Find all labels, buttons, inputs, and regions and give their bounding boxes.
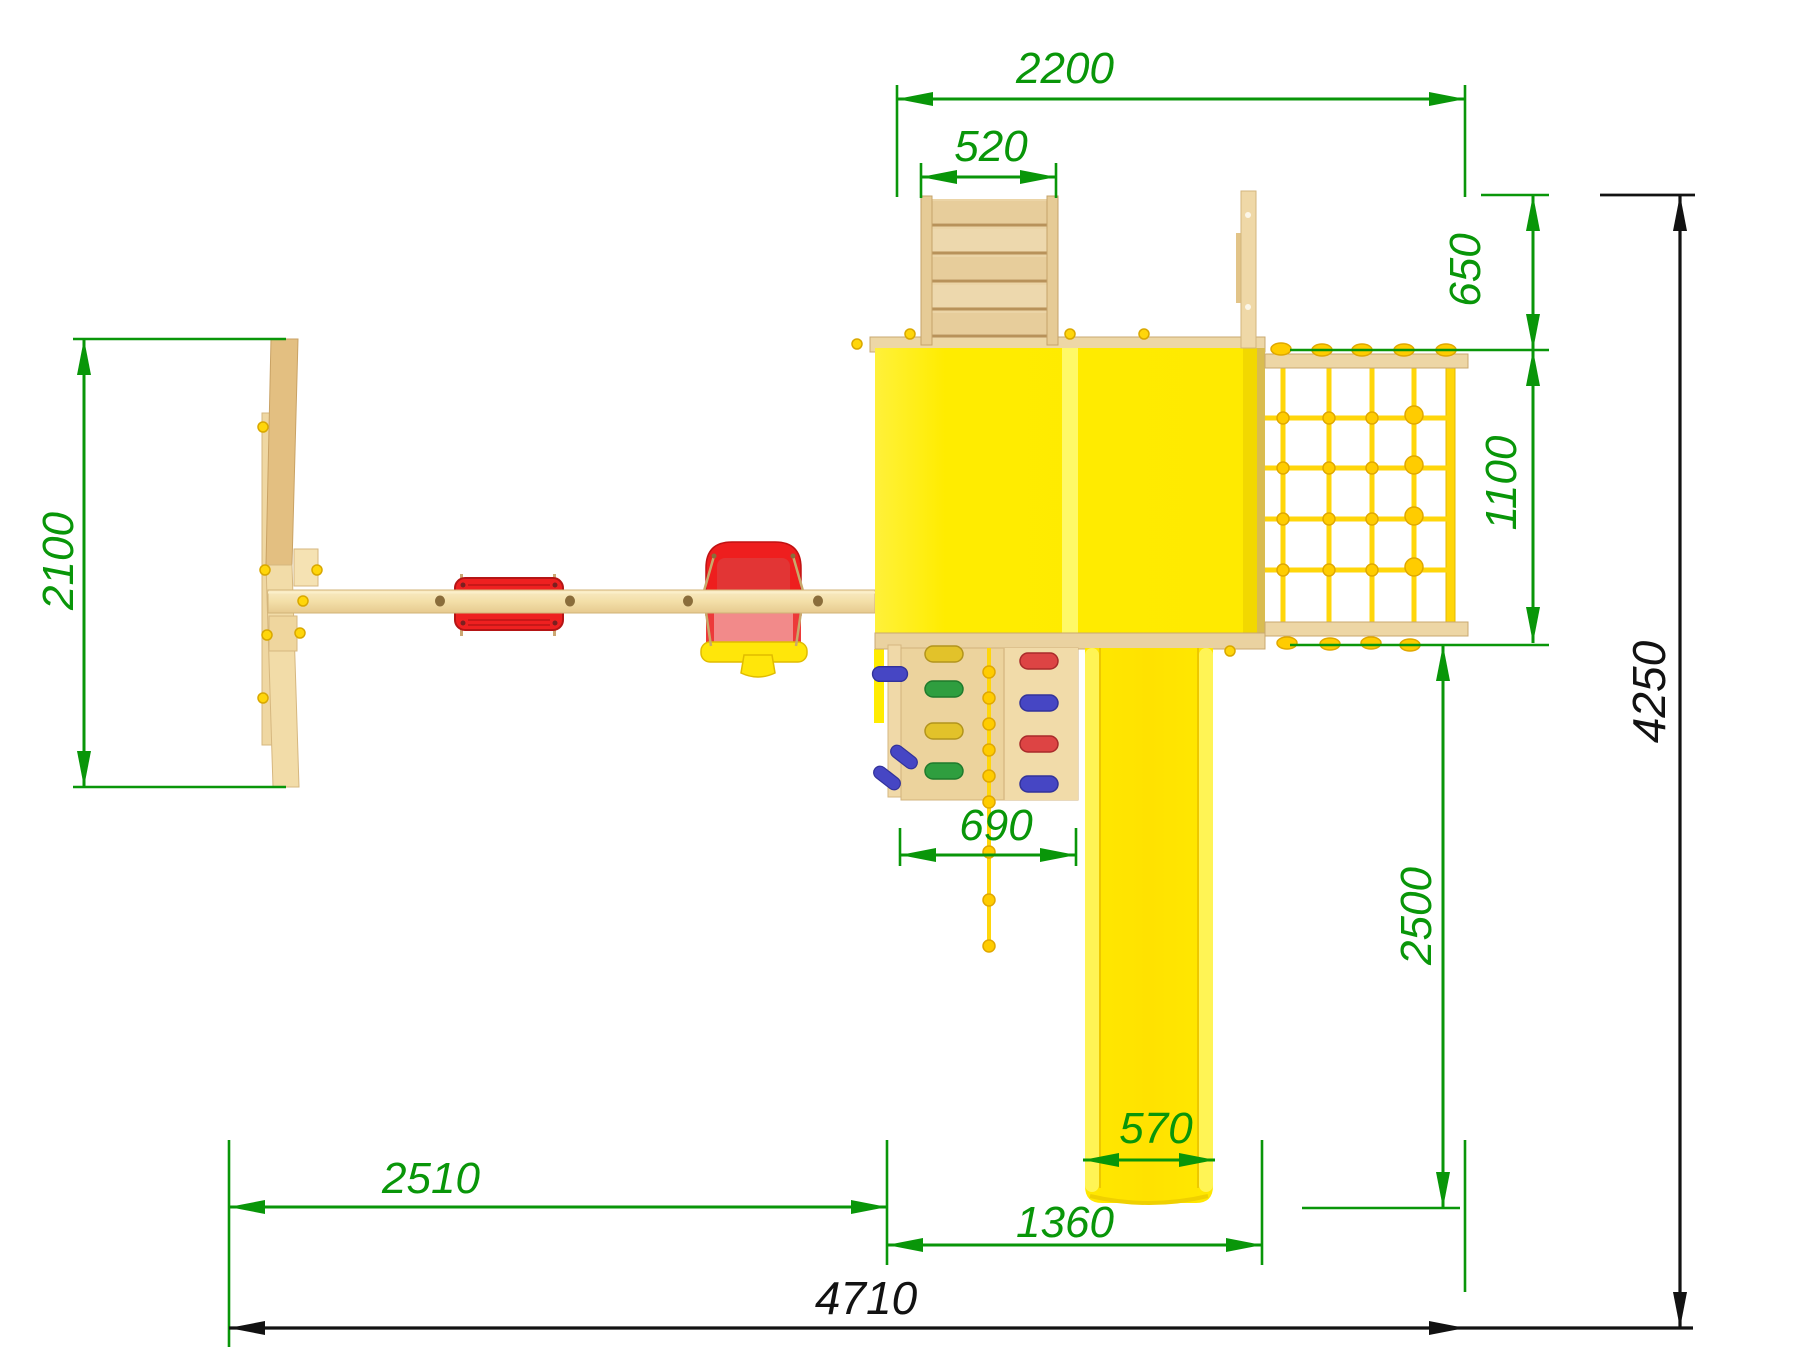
board-hole [1245, 304, 1251, 310]
beam-hole [813, 596, 823, 607]
bolt [295, 628, 305, 638]
arrowhead [921, 170, 957, 184]
arrowhead [1673, 1292, 1687, 1328]
beam-hole [683, 596, 693, 607]
arrowhead [1436, 1172, 1450, 1208]
arrowhead [77, 339, 91, 375]
arrowhead [851, 1200, 887, 1214]
net-knots [1277, 406, 1423, 576]
bolt [1065, 329, 1075, 339]
roof-ridge [1062, 348, 1078, 638]
seat-screw [553, 583, 558, 588]
bolt [260, 565, 270, 575]
rope-hook [791, 554, 796, 559]
drawing-canvas: 2200 520 2100 650 1100 4250 690 2500 570… [0, 0, 1800, 1353]
hold-blue [1020, 695, 1058, 711]
baby-seat-cushion [714, 613, 793, 644]
a-frame-lower-block [269, 616, 297, 651]
dim-label-2100: 2100 [34, 512, 83, 611]
ladder-rungs [932, 201, 1047, 336]
entry-ladder [921, 196, 1058, 345]
bolt [852, 339, 862, 349]
arrowhead [1020, 170, 1056, 184]
slide-right-rail [1199, 648, 1213, 1192]
bolt [312, 565, 322, 575]
bolt [905, 329, 915, 339]
dim-label-1360: 1360 [1016, 1198, 1114, 1247]
hold-red [1020, 653, 1058, 669]
hold-green [925, 681, 963, 697]
hold-green [925, 763, 963, 779]
arrowhead [887, 1238, 923, 1252]
beam-hole [565, 596, 575, 607]
hold-yellow [925, 646, 963, 662]
dim-label-4710: 4710 [815, 1272, 918, 1324]
bolt [298, 596, 308, 606]
hold-red [1020, 736, 1058, 752]
roof-right-edge [1257, 348, 1265, 638]
tower-left-wall [874, 649, 884, 723]
playground-top-view-drawing: 2200 520 2100 650 1100 4250 690 2500 570… [0, 0, 1800, 1353]
arrowhead [1526, 350, 1540, 386]
arrowhead [1673, 195, 1687, 231]
arrowhead [1526, 607, 1540, 643]
seat-screw [553, 621, 558, 626]
a-frame-upper-leg [266, 339, 298, 565]
dim-label-520: 520 [954, 122, 1028, 171]
climbing-rope [983, 648, 995, 952]
swing-a-frame [258, 339, 322, 787]
beam-hole [435, 596, 445, 607]
climbing-wall [871, 645, 1078, 952]
dim-label-570: 570 [1119, 1104, 1193, 1153]
board-hole [1245, 212, 1251, 218]
bolt [258, 422, 268, 432]
arrowhead [1226, 1238, 1262, 1252]
balcony-board [1236, 191, 1256, 348]
bolt [1139, 329, 1149, 339]
ladder-right-rail [1047, 196, 1058, 345]
seat-screw [461, 583, 466, 588]
dim-label-1100: 1100 [1477, 435, 1526, 530]
rope-hook [712, 554, 717, 559]
hold-yellow [925, 723, 963, 739]
arrowhead [1526, 195, 1540, 231]
seat-screw [461, 621, 466, 626]
dim-label-690: 690 [959, 801, 1033, 850]
arrowhead [77, 751, 91, 787]
dim-label-4250: 4250 [1623, 640, 1675, 743]
net-bottom-bar [1265, 622, 1468, 636]
net-rope-curls [1271, 343, 1456, 651]
climbing-net [1265, 343, 1468, 651]
arrowhead [900, 848, 936, 862]
arrowhead [897, 92, 933, 106]
dim-label-2510: 2510 [381, 1154, 480, 1203]
swing-beam [268, 590, 875, 613]
arrowhead [229, 1200, 265, 1214]
ladder-left-rail [921, 196, 932, 345]
bolt [262, 630, 272, 640]
slide-left-rail [1085, 648, 1099, 1192]
hold-blue [1020, 776, 1058, 792]
arrowhead [1429, 1321, 1465, 1335]
dim-label-2200: 2200 [1015, 44, 1114, 93]
bolt [258, 693, 268, 703]
bolt [1225, 646, 1235, 656]
baby-seat-tongue [741, 655, 775, 677]
arrowhead [1040, 848, 1076, 862]
net-ropes [1265, 366, 1455, 624]
arrowhead [1436, 645, 1450, 681]
dim-label-650: 650 [1441, 233, 1490, 307]
arrowhead [1429, 92, 1465, 106]
dim-label-2500: 2500 [1392, 867, 1441, 966]
arrowhead [229, 1321, 265, 1335]
roof-right-shade [1243, 348, 1257, 638]
arrowhead [1526, 314, 1540, 350]
